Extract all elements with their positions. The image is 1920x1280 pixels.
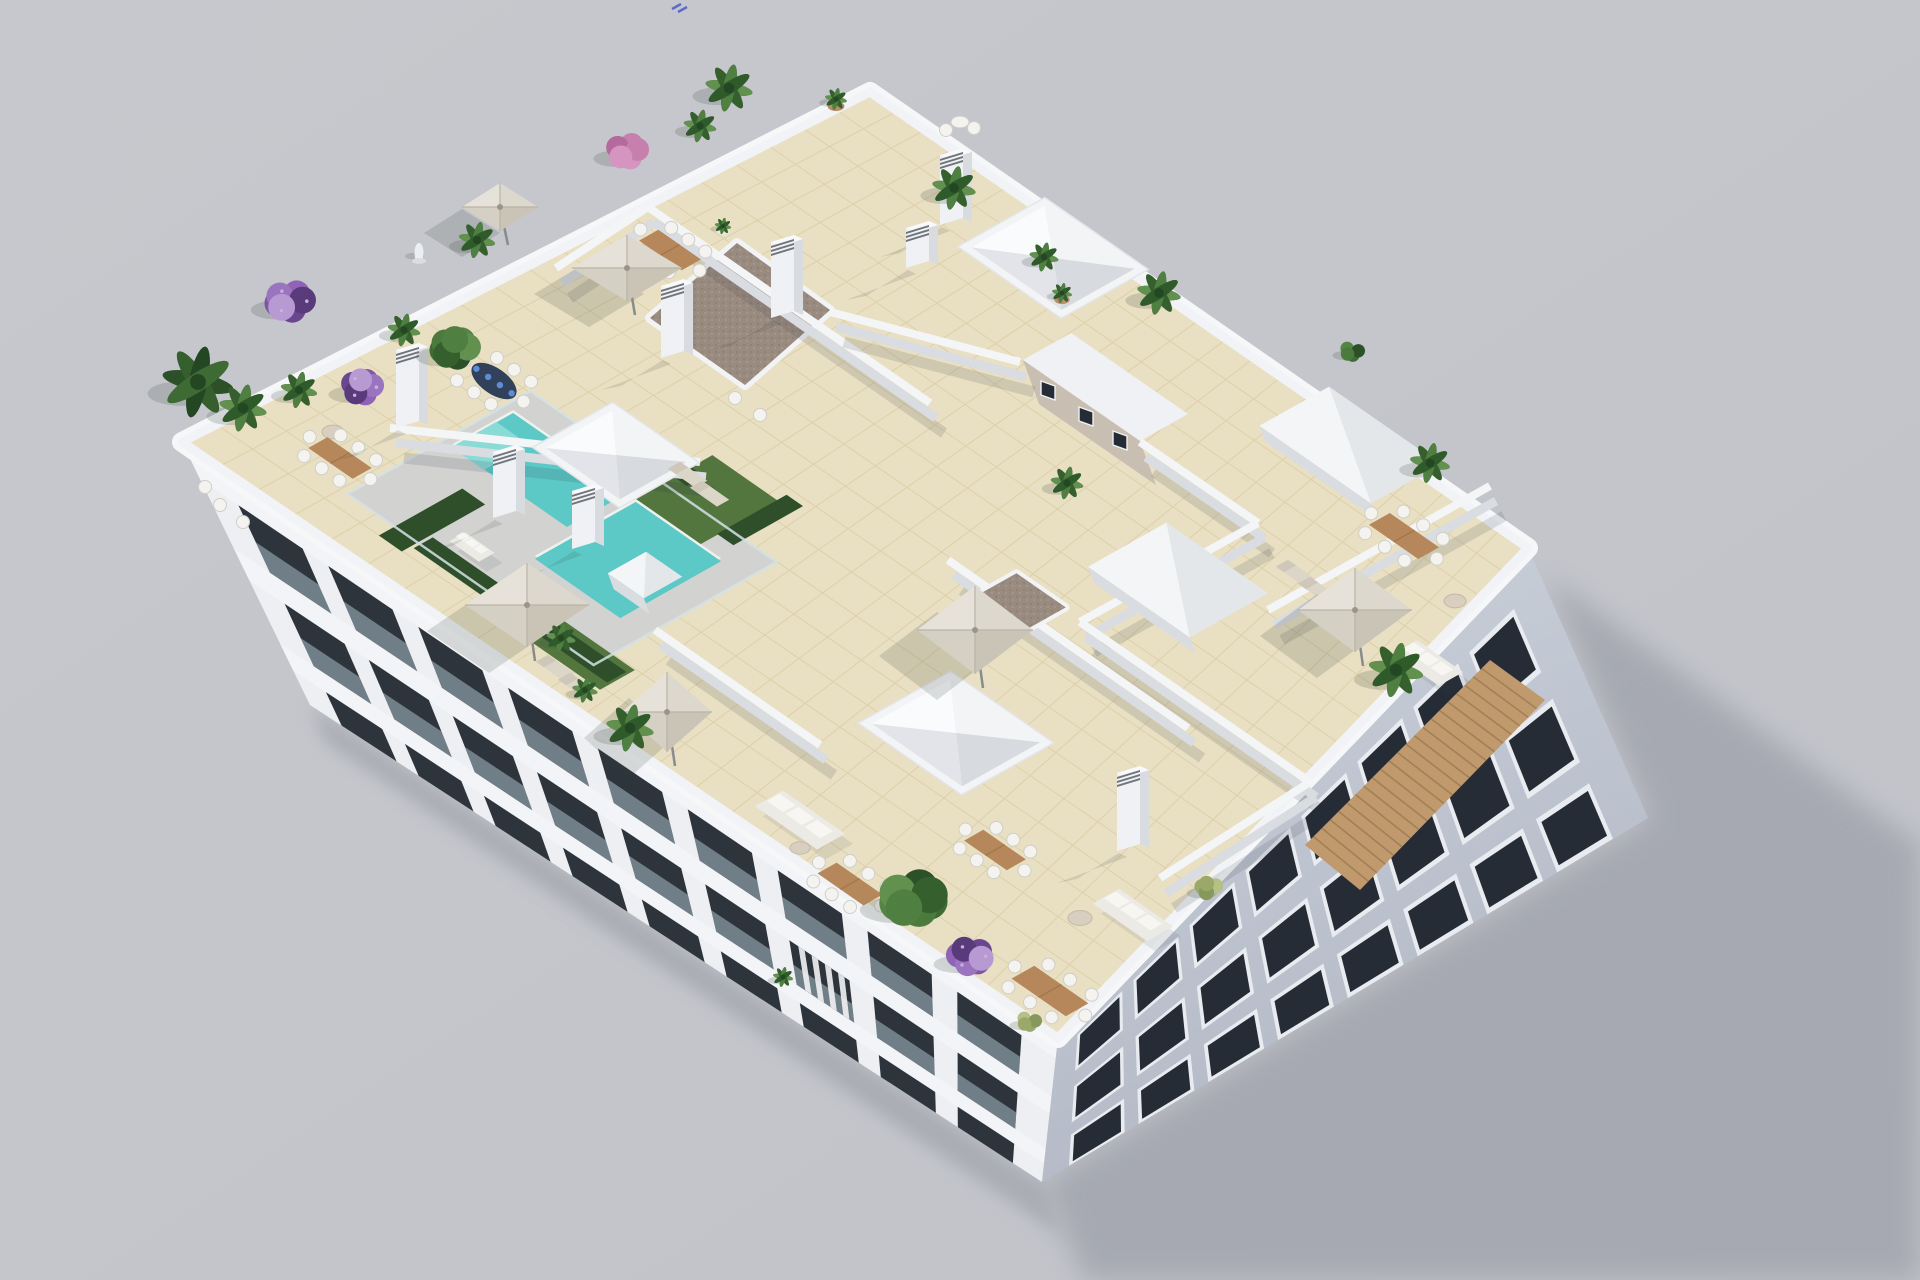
chair xyxy=(970,854,983,867)
rooftop-render-svg xyxy=(0,0,1920,1280)
chair xyxy=(1365,507,1378,520)
chair xyxy=(1417,519,1430,532)
chair xyxy=(754,409,767,422)
parasol xyxy=(624,265,630,271)
chair xyxy=(1002,981,1015,994)
chair xyxy=(807,875,820,888)
chair xyxy=(1064,973,1077,986)
chair xyxy=(990,821,1003,834)
chair xyxy=(467,386,480,399)
coffee-table xyxy=(1068,911,1092,926)
chair xyxy=(525,375,538,388)
chair xyxy=(699,245,712,258)
chair xyxy=(1397,505,1410,518)
chair xyxy=(517,395,530,408)
chair xyxy=(333,474,346,487)
chair xyxy=(450,374,463,387)
chair xyxy=(940,124,953,137)
parasol xyxy=(1352,607,1358,613)
chair xyxy=(315,462,328,475)
parasol xyxy=(524,602,530,608)
chair xyxy=(1398,554,1411,567)
chair xyxy=(1079,1009,1092,1022)
chair xyxy=(1008,960,1021,973)
chair xyxy=(987,866,1000,879)
chair xyxy=(298,449,311,462)
chair xyxy=(665,221,678,234)
chair xyxy=(1018,864,1031,877)
chair xyxy=(485,398,498,411)
chair xyxy=(844,901,857,914)
chair xyxy=(843,854,856,867)
chair xyxy=(1359,527,1372,540)
chair xyxy=(682,233,695,246)
chair xyxy=(1042,958,1055,971)
coffee-table xyxy=(1444,594,1466,608)
chair xyxy=(303,430,316,443)
parasol xyxy=(664,709,670,715)
chair xyxy=(959,823,972,836)
chair xyxy=(1024,845,1037,858)
parasol xyxy=(972,627,978,633)
chair xyxy=(693,264,706,277)
chair xyxy=(968,122,981,135)
parasol xyxy=(497,204,503,210)
bistro-table xyxy=(951,116,969,128)
chair xyxy=(1023,996,1036,1009)
chair xyxy=(334,429,347,442)
coffee-table xyxy=(790,842,810,854)
chair xyxy=(1378,540,1391,553)
chair xyxy=(825,888,838,901)
chair xyxy=(729,392,742,405)
chair xyxy=(214,499,227,512)
chair xyxy=(1085,988,1098,1001)
chair xyxy=(862,867,875,880)
chair xyxy=(812,856,825,869)
chair xyxy=(634,223,647,236)
chair xyxy=(369,454,382,467)
chair xyxy=(1436,532,1449,545)
chair xyxy=(364,473,377,486)
chair xyxy=(490,351,503,364)
chair xyxy=(508,363,521,376)
architectural-render: Aerial 3D render of a white apartment bu… xyxy=(0,0,1920,1280)
chair xyxy=(1430,552,1443,565)
chair xyxy=(199,481,212,494)
chair xyxy=(953,842,966,855)
chair xyxy=(1007,833,1020,846)
chair xyxy=(1045,1011,1058,1024)
chair xyxy=(237,516,250,529)
